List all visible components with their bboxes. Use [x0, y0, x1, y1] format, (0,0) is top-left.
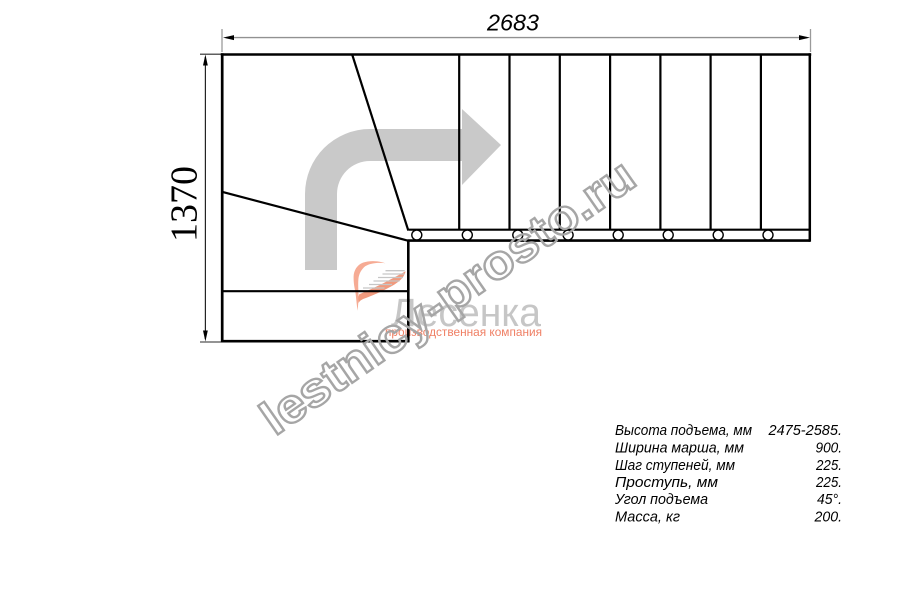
- svg-text:900.: 900.: [816, 439, 843, 456]
- svg-text:200.: 200.: [814, 508, 842, 525]
- svg-text:45°.: 45°.: [817, 491, 842, 508]
- svg-text:Шаг ступеней, мм: Шаг ступеней, мм: [615, 457, 736, 474]
- svg-text:Угол подъема: Угол подъема: [614, 491, 708, 508]
- svg-text:Масса, кг: Масса, кг: [615, 508, 680, 525]
- svg-text:2683: 2683: [486, 10, 539, 36]
- svg-text:225.: 225.: [815, 457, 842, 474]
- svg-text:2475-2585.: 2475-2585.: [768, 422, 842, 439]
- svg-text:Высота подъема, мм: Высота подъема, мм: [615, 422, 753, 439]
- svg-text:Проступь, мм: Проступь, мм: [615, 474, 719, 491]
- svg-text:225.: 225.: [815, 474, 842, 491]
- svg-text:Ширина марша, мм: Ширина марша, мм: [615, 439, 745, 456]
- svg-text:1370: 1370: [164, 166, 206, 242]
